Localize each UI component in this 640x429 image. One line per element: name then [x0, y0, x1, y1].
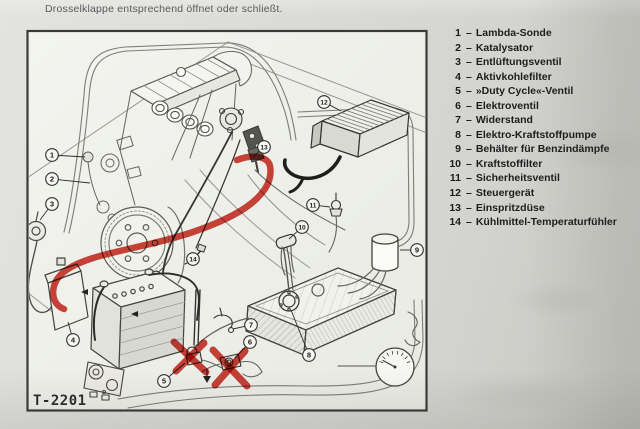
- callout-number-3: 3: [50, 200, 54, 209]
- callout-number-7: 7: [249, 321, 253, 330]
- callout-number-11: 11: [310, 203, 317, 210]
- callout-number-2: 2: [50, 175, 54, 184]
- callout-number-10: 10: [298, 225, 306, 232]
- callout-number-9: 9: [415, 246, 419, 255]
- callout-number-14: 14: [189, 257, 197, 264]
- engine-diagram: 1234567891011121314 T-2201: [0, 0, 640, 429]
- callout-number-13: 13: [260, 145, 268, 152]
- callout-number-6: 6: [248, 338, 252, 347]
- callout-number-12: 12: [320, 100, 328, 107]
- figure-code: T-2201: [33, 393, 87, 409]
- callout-number-8: 8: [307, 351, 311, 360]
- book-page: Drosselklappe entsprechend öffnet oder s…: [0, 0, 640, 429]
